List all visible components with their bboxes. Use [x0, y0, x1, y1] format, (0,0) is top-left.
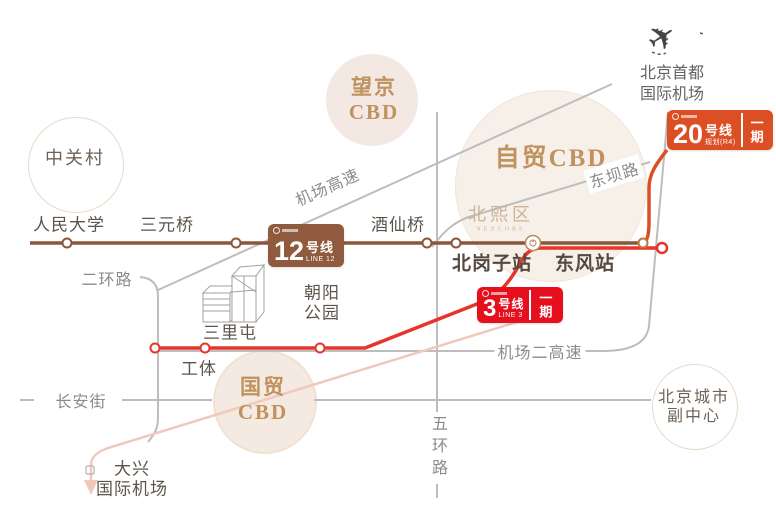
- station-label-beigangzi: 北岗子站: [452, 249, 532, 276]
- area-label-subcenter: 北京城市 副中心: [658, 388, 730, 426]
- project-logo: 北熙区 NEXCORE: [468, 206, 534, 233]
- line3-unit: 号线: [498, 298, 524, 310]
- station-label-sanlitun: 三里屯: [203, 319, 257, 344]
- station-dot-chaoyang-park: [316, 344, 325, 353]
- line12-unit: 号线: [306, 241, 335, 254]
- buildings-illustration: [203, 265, 264, 322]
- wangjing-line2: CBD: [349, 100, 399, 125]
- subcenter-line2: 副中心: [658, 407, 730, 426]
- station-label-renmin: 人民大学: [33, 211, 105, 236]
- area-label-guomao-cbd: 国贸 CBD: [238, 375, 288, 425]
- road-label-second-ring: 二环路: [78, 266, 135, 290]
- daxing-airport-line1: 大兴: [96, 460, 168, 480]
- daxing-airport-line2: 国际机场: [96, 480, 168, 500]
- project-name: 北熙区: [468, 206, 534, 224]
- line20-number: 20: [673, 123, 703, 146]
- line12-badge: 12 号线 LINE 12: [268, 224, 344, 267]
- capital-airport-label: 北京首都 国际机场: [640, 64, 704, 106]
- road-label-fifth-ring: 五环路: [422, 415, 452, 481]
- area-label-wangjing-cbd: 望京 CBD: [349, 75, 399, 125]
- road-label-second-airport-expressway: 机场二高速: [494, 339, 585, 363]
- chaoyang-line2: 公园: [304, 304, 340, 324]
- second-ring-road: [140, 277, 158, 442]
- line3-number: 3: [483, 299, 496, 319]
- subcenter-line1: 北京城市: [658, 388, 730, 407]
- brand-mini-logo: [672, 113, 697, 120]
- station-dot-jiuxianqiao: [423, 239, 432, 248]
- line12-subtitle: LINE 12: [306, 256, 335, 263]
- capital-airport-line2: 国际机场: [640, 85, 704, 106]
- line20-badge: 20 号线 规划(R4) 一期: [667, 110, 773, 150]
- capital-airport-line1: 北京首都: [640, 64, 704, 85]
- chaoyang-line1: 朝阳: [304, 284, 340, 304]
- wangjing-line1: 望京: [349, 75, 399, 100]
- line12-number: 12: [274, 240, 304, 263]
- line3-phase: 一期: [531, 287, 558, 323]
- daxing-airport-label: 大兴 国际机场: [96, 460, 168, 501]
- station-label-jiuxianqiao: 酒仙桥: [371, 211, 425, 236]
- road-label-changan-avenue: 长安街: [52, 388, 109, 412]
- line20-phase: 一期: [743, 110, 770, 150]
- station-dot-line3-terminal-east: [657, 243, 667, 253]
- line20-unit: 号线: [705, 124, 736, 137]
- guomao-line1: 国贸: [238, 375, 288, 400]
- station-label-chaoyang-park: 朝阳 公园: [304, 284, 340, 325]
- station-dot-line3-terminal-west: [151, 344, 160, 353]
- station-label-gongti: 工体: [181, 355, 217, 380]
- station-dot-gongti: [201, 344, 210, 353]
- station-dot-sanyuanqiao: [232, 239, 241, 248]
- station-dot-renmin: [63, 239, 72, 248]
- line3-badge: 3 号线 LINE 3 一期: [477, 287, 563, 323]
- station-dot-beigangzi: [452, 239, 461, 248]
- guomao-line2: CBD: [238, 400, 288, 425]
- station-label-sanyuanqiao: 三元桥: [140, 211, 194, 236]
- line20-subtitle: 规划(R4): [705, 139, 736, 146]
- brand-mini-logo: [482, 290, 507, 297]
- line3-subtitle: LINE 3: [498, 312, 524, 319]
- brand-mini-logo: [273, 227, 298, 234]
- metro-location-map: ✈ 中关村 望京 CBD 自贸CBD 国贸 CBD 北京城市 副中心 北熙区 N…: [0, 0, 776, 512]
- project-latin-name: NEXCORE: [468, 227, 534, 233]
- area-label-zhongguancun: 中关村: [45, 144, 105, 170]
- station-label-dongfeng: 东风站: [555, 249, 615, 276]
- station-dot-dongfeng-junction: [639, 239, 648, 248]
